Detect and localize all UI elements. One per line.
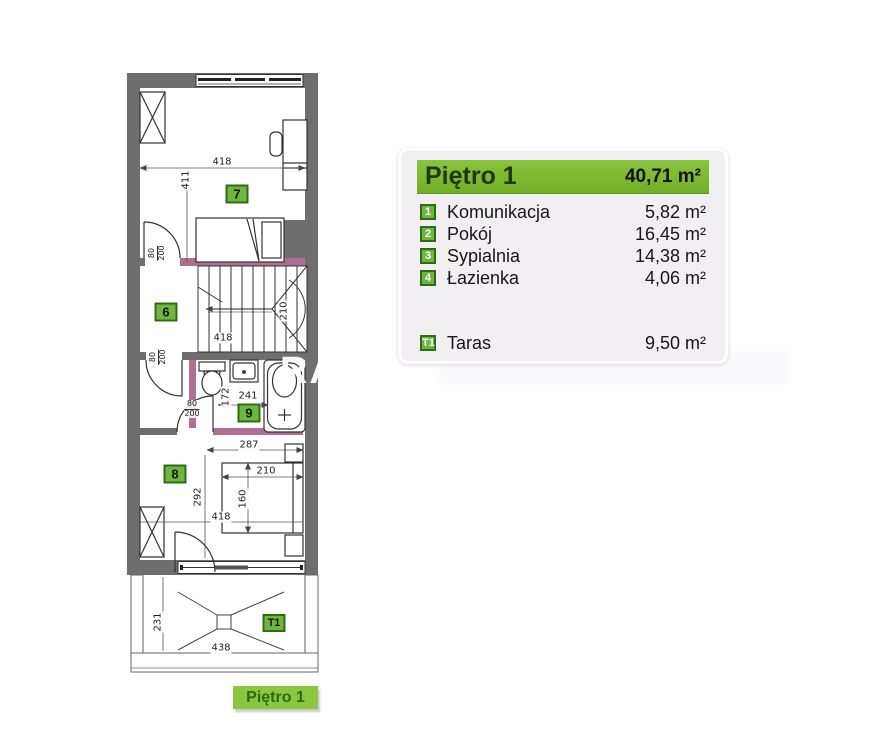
chair-icon	[270, 132, 282, 156]
window-bottom-icon	[178, 562, 305, 574]
legend-room-area: 9,50 m²	[645, 333, 706, 354]
legend-num-badge: 1	[420, 204, 436, 220]
door-size-label: 80200	[149, 349, 167, 364]
legend-room-area: 14,38 m²	[635, 246, 706, 267]
dimension-label: 438	[210, 643, 231, 654]
legend-room-area: 4,06 m²	[645, 268, 706, 289]
dimension-label: 418	[212, 333, 233, 344]
legend-room-name: Łazienka	[447, 268, 519, 289]
legend-row-taras: T1 Taras 9,50 m²	[420, 332, 706, 354]
legend-panel: Piętro 1 40,71 m² 1Komunikacja5,82 m²2Po…	[398, 148, 728, 364]
door-size-label: 80200	[148, 245, 166, 260]
bed-single-icon	[196, 218, 284, 262]
legend-room-area: 5,82 m²	[645, 202, 706, 223]
dimension-label: 231	[153, 611, 164, 632]
window-top-icon	[196, 75, 303, 87]
room-marker: 6	[155, 303, 178, 322]
legend-room-area: 16,45 m²	[635, 224, 706, 245]
room-marker: 8	[164, 465, 187, 484]
dimension-label: 210	[279, 300, 290, 321]
dimension-label: 287	[238, 440, 259, 451]
legend-num-badge: 3	[420, 248, 436, 264]
room-marker: 9	[238, 404, 261, 423]
legend-room-name: Komunikacja	[447, 202, 550, 223]
legend-room-row: 3Sypialnia14,38 m²	[420, 245, 706, 267]
wardrobe-icon	[140, 507, 164, 557]
legend-num-badge: 4	[420, 270, 436, 286]
sink-icon	[230, 360, 258, 382]
room-marker: 7	[226, 185, 249, 204]
dimension-label: 418	[211, 157, 232, 168]
legend-header: Piętro 1 40,71 m²	[417, 160, 709, 194]
nightstand-icon	[285, 444, 303, 462]
legend-num-badge: T1	[420, 335, 436, 351]
legend-room-row: 2Pokój16,45 m²	[420, 223, 706, 245]
dimension-label: 172	[221, 386, 232, 407]
legend-room-row: 4Łazienka4,06 m²	[420, 267, 706, 289]
room-marker: T1	[263, 614, 286, 632]
floor-banner: Piętro 1	[233, 686, 318, 709]
screenshot-root: 7698T14184114182101722412872922101604182…	[0, 0, 871, 748]
dimension-label: 411	[181, 169, 192, 190]
nightstand-icon	[285, 535, 303, 556]
dimension-label: 292	[193, 486, 204, 507]
legend-num-badge: 2	[420, 226, 436, 242]
legend-total-area: 40,71 m²	[625, 166, 701, 188]
dimension-label: 160	[238, 488, 249, 509]
legend-room-name: Pokój	[447, 224, 492, 245]
legend-room-name: Taras	[447, 333, 491, 354]
dimension-label: 210	[255, 466, 276, 477]
dimension-label: 241	[237, 391, 258, 402]
dimension-label: 418	[210, 512, 231, 523]
watermark-text: RA	[280, 350, 339, 393]
legend-title: Piętro 1	[425, 162, 517, 191]
legend-room-list: 1Komunikacja5,82 m²2Pokój16,45 m²3Sypial…	[401, 199, 725, 289]
legend-room-name: Sypialnia	[447, 246, 520, 267]
legend-room-row: 1Komunikacja5,82 m²	[420, 201, 706, 223]
door-size-label: 80200	[184, 400, 199, 418]
wardrobe-icon	[140, 92, 165, 143]
